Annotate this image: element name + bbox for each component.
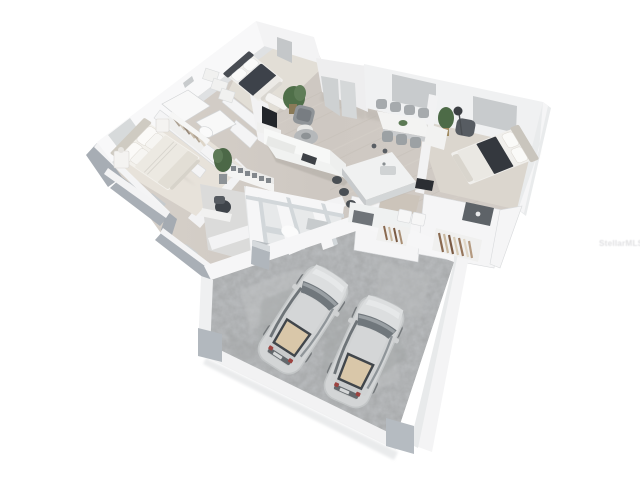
svg-text:StellarMLS: StellarMLS — [599, 239, 640, 248]
